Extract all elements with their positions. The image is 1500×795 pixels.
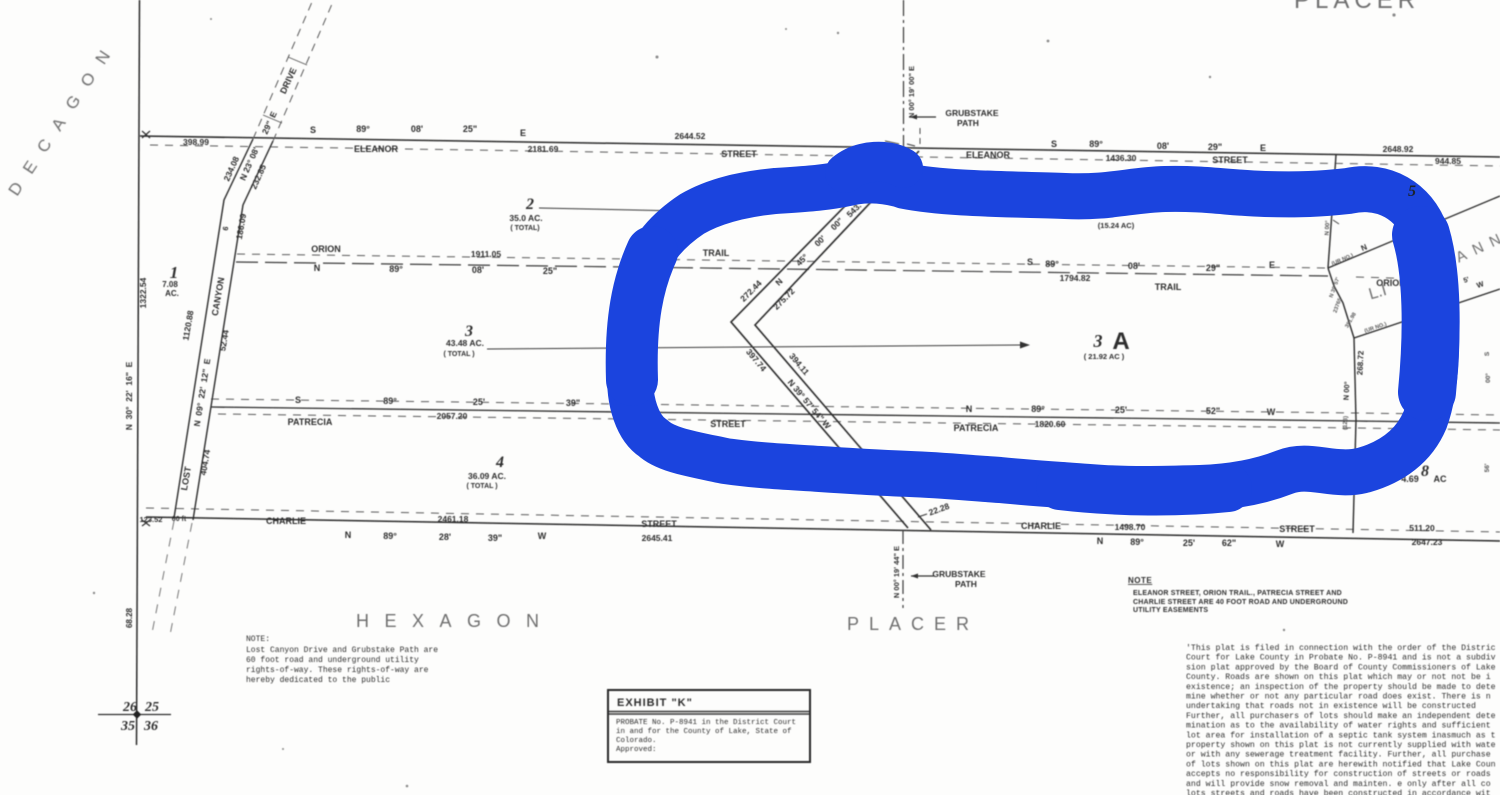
svg-text:7.08: 7.08 xyxy=(162,280,178,289)
svg-text:NOTE:: NOTE: xyxy=(246,635,270,644)
svg-text:Lost Canyon Drive and Grubstak: Lost Canyon Drive and Grubstake Path are xyxy=(246,646,438,655)
svg-text:25': 25' xyxy=(1183,538,1195,548)
svg-text:89°: 89° xyxy=(1045,259,1059,269)
svg-text:in and for the County of Lake,: in and for the County of Lake, State of xyxy=(616,728,792,736)
svg-text:2181.69: 2181.69 xyxy=(528,144,559,154)
svg-text:CHARLIE STREET ARE 40 FOOT: CHARLIE STREET ARE 40 FOOT ROAD AND UNDE… xyxy=(1133,599,1348,606)
svg-text:S: S xyxy=(1484,351,1491,356)
svg-text:89°: 89° xyxy=(389,264,403,274)
svg-text:26: 26 xyxy=(122,700,137,715)
svg-text:1498.70: 1498.70 xyxy=(1115,522,1146,532)
svg-text:36.09 AC.: 36.09 AC. xyxy=(468,471,506,481)
svg-text:ELEANOR STREET, ORION TRAIL: ELEANOR STREET, ORION TRAIL., PATRECIA S… xyxy=(1133,590,1342,597)
svg-text:accepts no responsibility for: accepts no responsibility for constructi… xyxy=(1186,769,1491,779)
svg-text:CHARLIE: CHARLIE xyxy=(266,516,306,526)
svg-text:PLACER: PLACER xyxy=(847,614,979,634)
svg-text:89°: 89° xyxy=(1130,537,1144,547)
svg-text:or with any sewerage treatment: or with any sewerage treatment facility.… xyxy=(1186,750,1491,760)
svg-text:ORION: ORION xyxy=(311,244,341,254)
svg-text:1911.05: 1911.05 xyxy=(471,249,502,259)
svg-text:S: S xyxy=(310,125,316,135)
svg-text:36: 36 xyxy=(143,719,158,734)
svg-text:25': 25' xyxy=(473,397,485,407)
svg-text:Further, all purchasers of lot: Further, all purchasers of lots should m… xyxy=(1186,711,1496,721)
svg-text:(123): (123) xyxy=(1343,416,1350,430)
svg-text:2647.23: 2647.23 xyxy=(1412,537,1443,547)
svg-text:56': 56' xyxy=(1484,463,1491,472)
svg-text:25': 25' xyxy=(1115,405,1127,415)
svg-text:8: 8 xyxy=(1421,463,1429,480)
svg-text:511.20: 511.20 xyxy=(1409,523,1435,533)
svg-text:89°: 89° xyxy=(383,531,397,541)
svg-text:123.52: 123.52 xyxy=(140,515,163,524)
svg-text:AC: AC xyxy=(1434,474,1447,484)
svg-text:2644.52: 2644.52 xyxy=(675,131,706,141)
svg-text:5: 5 xyxy=(1408,183,1416,200)
svg-text:89°: 89° xyxy=(356,124,370,134)
svg-text:2: 2 xyxy=(525,196,534,213)
svg-text:89°: 89° xyxy=(383,396,397,406)
svg-text:89°: 89° xyxy=(1089,139,1103,149)
svg-text:existence; an inspection of th: existence; an inspection of the property… xyxy=(1186,682,1496,692)
svg-text:1794.82: 1794.82 xyxy=(1060,273,1091,283)
svg-text:County. Roads are shown on th: County. Roads are shown on this plat whi… xyxy=(1186,672,1491,682)
svg-text:lot area for installation of a: lot area for installation of a septic ta… xyxy=(1186,730,1496,740)
svg-text:08': 08' xyxy=(1128,261,1140,271)
svg-text:W: W xyxy=(1267,407,1276,417)
svg-text:PROBATE No. P-8941 in the Dist: PROBATE No. P-8941 in the District Court xyxy=(616,719,796,727)
svg-text:property shown on this plat is: property shown on this plat is not curre… xyxy=(1186,740,1496,750)
svg-text:Colorado.: Colorado. xyxy=(616,737,657,745)
svg-text:W: W xyxy=(538,531,547,541)
svg-text:944.85: 944.85 xyxy=(1435,156,1461,166)
svg-text:STREET: STREET xyxy=(641,519,677,529)
svg-text:E: E xyxy=(1260,143,1266,153)
svg-text:2057.20: 2057.20 xyxy=(437,411,468,421)
svg-text:N 30° 22' 16" E: N 30° 22' 16" E xyxy=(124,361,134,430)
svg-text:N: N xyxy=(345,530,352,540)
svg-text:68.28: 68.28 xyxy=(125,607,134,628)
svg-text:2645.41: 2645.41 xyxy=(642,533,673,543)
svg-text:25": 25" xyxy=(463,124,477,134)
svg-text:mine whether or not any partic: mine whether or not any particular road … xyxy=(1186,692,1491,702)
svg-text:PATRECIA: PATRECIA xyxy=(954,423,999,433)
svg-text:62": 62" xyxy=(1222,538,1236,548)
svg-text:NOTE: NOTE xyxy=(1128,576,1152,585)
svg-text:STREET: STREET xyxy=(710,419,746,429)
svg-text:PATH: PATH xyxy=(957,118,979,128)
svg-text:00°: 00° xyxy=(1484,373,1492,383)
svg-text:S: S xyxy=(1027,257,1033,267)
svg-text:3: 3 xyxy=(1093,331,1103,351)
svg-text:STREET: STREET xyxy=(1212,155,1248,165)
svg-text:CHARLIE: CHARLIE xyxy=(1021,521,1061,531)
svg-text:STREET: STREET xyxy=(721,149,757,159)
svg-text:4: 4 xyxy=(495,454,504,471)
svg-text:29": 29" xyxy=(1208,142,1222,152)
svg-text:1436.30: 1436.30 xyxy=(1106,153,1137,163)
svg-text:(15.24 AC): (15.24 AC) xyxy=(1098,221,1135,230)
svg-text:39": 39" xyxy=(566,398,580,408)
svg-text:N: N xyxy=(1097,536,1104,546)
svg-text:A: A xyxy=(1112,328,1129,355)
svg-text:undertaking that roads not in: undertaking that roads not in existence … xyxy=(1186,701,1476,711)
svg-text:N 00°: N 00° xyxy=(1342,381,1352,400)
svg-text:1322.54: 1322.54 xyxy=(138,277,148,308)
svg-text:lots streets and roads have be: lots streets and roads have been constru… xyxy=(1186,789,1491,795)
svg-text:ELEANOR: ELEANOR xyxy=(966,150,1011,160)
svg-text:AC.: AC. xyxy=(165,289,179,298)
svg-text:EXHIBIT "K": EXHIBIT "K" xyxy=(617,697,693,709)
svg-text:sion plat approved by the Boar: sion plat approved by the Board of Count… xyxy=(1186,662,1496,672)
svg-text:S: S xyxy=(295,395,301,405)
svg-text:2648.92: 2648.92 xyxy=(1383,144,1414,154)
svg-text:E: E xyxy=(520,128,526,138)
svg-text:2461.18: 2461.18 xyxy=(438,514,469,524)
svg-text:39": 39" xyxy=(488,533,502,543)
svg-text:mination as to the availabilit: mination as to the availability of water… xyxy=(1186,721,1491,731)
svg-text:N 00° 19' 44" E: N 00° 19' 44" E xyxy=(892,546,901,598)
svg-text:29": 29" xyxy=(1206,263,1220,273)
svg-text:GRUBSTAKE: GRUBSTAKE xyxy=(932,569,986,579)
svg-text:ELEANOR: ELEANOR xyxy=(354,144,399,154)
svg-text:PATH: PATH xyxy=(955,579,977,589)
svg-text:PLACER: PLACER xyxy=(1294,0,1420,14)
svg-text:TRAIL: TRAIL xyxy=(1155,282,1182,292)
svg-text:35.0 AC.: 35.0 AC. xyxy=(509,213,542,223)
svg-text:W: W xyxy=(1276,539,1285,549)
svg-text:and will provide snow removal: and will provide snow removal and mainte… xyxy=(1186,779,1491,789)
svg-text:E: E xyxy=(1269,260,1275,270)
svg-text:of lots shown on this plat are: of lots shown on this plat are herewith … xyxy=(1186,759,1496,769)
svg-text:( TOTAL): ( TOTAL) xyxy=(510,225,539,232)
svg-text:Approved:: Approved: xyxy=(616,746,657,754)
svg-text:N: N xyxy=(966,404,973,414)
svg-text:398.99: 398.99 xyxy=(183,137,209,147)
svg-text:TRAIL: TRAIL xyxy=(703,248,730,258)
svg-text:N: N xyxy=(314,263,321,273)
svg-text:25: 25 xyxy=(144,700,159,715)
svg-text:43.48 AC.: 43.48 AC. xyxy=(446,338,484,348)
svg-text:S: S xyxy=(1051,139,1057,149)
svg-text:( TOTAL ): ( TOTAL ) xyxy=(466,483,497,490)
svg-text:25": 25" xyxy=(543,266,557,276)
svg-text:UTILITY EASEMENTS: UTILITY EASEMENTS xyxy=(1133,607,1208,614)
svg-text:35: 35 xyxy=(120,719,135,734)
svg-text:268.72: 268.72 xyxy=(1355,350,1365,375)
svg-text:'This plat is filed in connect: 'This plat is filed in connection with t… xyxy=(1186,643,1496,653)
svg-text:STREET: STREET xyxy=(1279,524,1315,534)
svg-text:08': 08' xyxy=(1157,141,1169,151)
svg-text:52": 52" xyxy=(1206,406,1220,416)
svg-text:08': 08' xyxy=(472,265,484,275)
svg-text:1820.60: 1820.60 xyxy=(1035,419,1066,429)
svg-text:60 foot road and underground u: 60 foot road and underground utility xyxy=(246,656,419,665)
svg-text:( 21.92 AC ): ( 21.92 AC ) xyxy=(1084,352,1125,361)
svg-text:89°: 89° xyxy=(1031,404,1045,414)
svg-text:Court for Lake County in Proba: Court for Lake County in Probate No. P-8… xyxy=(1186,653,1496,663)
svg-text:08': 08' xyxy=(411,124,423,134)
svg-text:( TOTAL ): ( TOTAL ) xyxy=(443,351,474,358)
svg-text:N 00° 19' 00" E: N 00° 19' 00" E xyxy=(907,66,916,118)
svg-text:28': 28' xyxy=(439,532,451,542)
svg-text:HEXAGON: HEXAGON xyxy=(356,611,555,631)
svg-text:PATRECIA: PATRECIA xyxy=(288,417,333,427)
svg-text:hereby dedicated to the public: hereby dedicated to the public xyxy=(246,676,390,685)
svg-text:GRUBSTAKE: GRUBSTAKE xyxy=(945,108,999,118)
svg-text:rights-of-way. These rights-o: rights-of-way. These rights-of-way are xyxy=(246,666,429,675)
svg-text:N 00°: N 00° xyxy=(1325,220,1332,236)
